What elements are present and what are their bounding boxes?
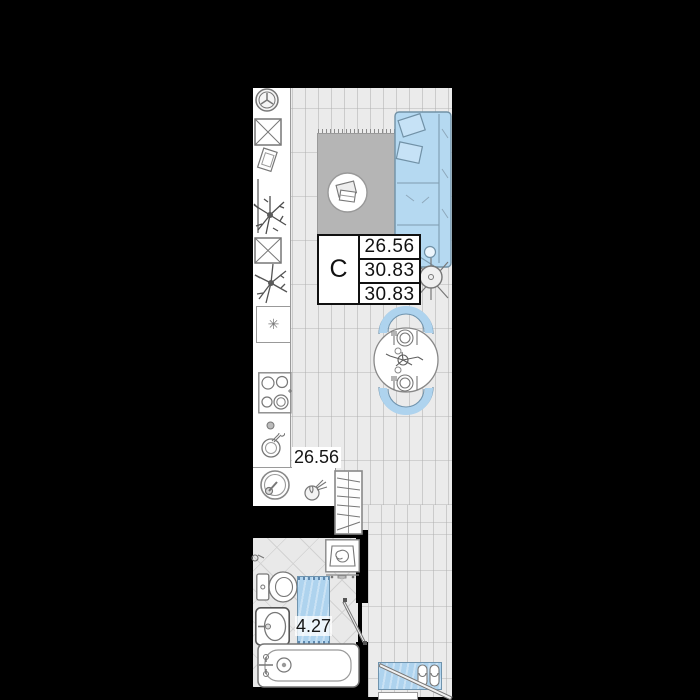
door-hinge [363, 641, 367, 645]
knob-icon [266, 421, 275, 430]
bathtub [257, 643, 360, 688]
washing-machine [325, 539, 360, 579]
garlic-icon [301, 478, 328, 503]
dining-table [366, 296, 446, 418]
entry-threshold [378, 692, 418, 700]
door-hinge [343, 598, 347, 602]
plant-icon [248, 258, 294, 308]
paper-holder-icon [251, 551, 265, 564]
mat-fringe [298, 577, 329, 580]
drying-rack-icon [334, 470, 363, 535]
bath-mat: 4.27 [297, 576, 330, 645]
unit-type-card: С 26.56 30.83 30.83 [317, 234, 421, 305]
unit-area-row: 30.83 [360, 260, 419, 284]
cooker-hood-icon [254, 87, 280, 113]
stove-icon [258, 372, 292, 414]
lamp-box-icon: ✳ [256, 306, 291, 343]
toilet [256, 570, 298, 604]
cutting-board-icon [256, 147, 280, 175]
wall [250, 687, 368, 700]
vanity-sink [255, 607, 290, 646]
cabinet-cross-icon [254, 118, 282, 146]
unit-area-row: 30.83 [360, 284, 419, 306]
unit-type-letter: С [319, 236, 360, 303]
bathroom-area-label: 4.27 [295, 616, 332, 636]
coffee-table [327, 172, 368, 213]
unit-area-row: 26.56 [360, 236, 419, 260]
main-area-label: 26.56 [292, 447, 341, 468]
mixing-bowl-icon [259, 433, 285, 459]
floor-plan: ✳ [0, 0, 700, 700]
kitchen-sink-icon [256, 467, 293, 504]
plant-icon [246, 190, 294, 240]
